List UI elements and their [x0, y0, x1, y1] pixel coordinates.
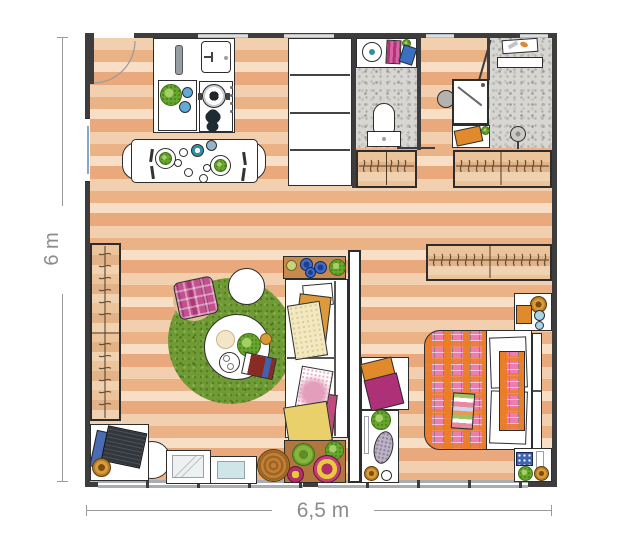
toilet-bowl — [373, 103, 395, 133]
dimension-tick — [57, 37, 68, 38]
green-pouf-icon — [292, 443, 315, 466]
rattan-pouf — [257, 449, 290, 482]
shower-head-arm-icon — [517, 141, 519, 149]
picture-icon — [217, 461, 245, 479]
window-top-3 — [426, 34, 454, 38]
hanger-row-icon — [454, 151, 551, 186]
blue-bowl-icon — [182, 87, 193, 98]
shower-handle-icon — [481, 83, 485, 87]
blue-box-icon — [516, 452, 533, 466]
console-handle-icon — [364, 416, 369, 454]
blue-bowl-icon — [179, 101, 191, 113]
plaid-runner — [499, 351, 525, 431]
cup-icon — [174, 159, 182, 167]
shower-head-icon — [510, 126, 526, 142]
hanger-row-icon — [427, 245, 551, 279]
dimension-tick — [57, 481, 68, 482]
hob-knob-icon — [230, 102, 233, 105]
sliding-door — [397, 147, 435, 149]
jug-icon — [206, 140, 217, 151]
wall-right — [552, 33, 557, 487]
hanger-row-icon — [357, 151, 416, 186]
cabinet-shelf-line — [290, 149, 350, 151]
desk-stool — [92, 458, 111, 477]
plant-icon — [518, 466, 533, 481]
dimension-tick — [551, 505, 552, 516]
soap-icon — [481, 126, 490, 135]
height-dimension-line — [62, 294, 63, 481]
blue-plate-icon — [305, 267, 316, 278]
cup-icon — [199, 174, 208, 183]
height-dimension-line — [62, 38, 63, 206]
gold-bowl-icon — [260, 333, 272, 345]
cup-icon — [203, 164, 211, 172]
window-top-4 — [520, 34, 548, 38]
round-stool — [228, 268, 265, 305]
plaid-pouf — [172, 275, 219, 320]
cup-icon — [184, 168, 193, 177]
entry-door-swing-icon — [90, 38, 136, 84]
blue-cup-icon — [534, 310, 545, 321]
faucet-icon — [211, 52, 213, 62]
blue-cup-icon — [535, 321, 544, 330]
floor-plan: 6 m 6,5 m — [0, 0, 620, 537]
teal-bowl-icon — [191, 144, 204, 157]
bowl-icon — [364, 466, 379, 481]
cabinet-shelf-line — [290, 74, 350, 76]
cookie-icon — [227, 363, 234, 370]
olive-dish-icon — [286, 260, 297, 271]
plate-icon — [216, 330, 235, 349]
width-dimension-line — [374, 510, 552, 511]
magenta-pouf-icon — [313, 455, 341, 483]
mirror-icon — [172, 455, 204, 478]
food-icon — [214, 159, 227, 172]
bathroom-wall-right — [417, 38, 421, 150]
cabinet-shelf-line — [290, 112, 350, 114]
coaster-icon — [534, 466, 549, 481]
sink-drain-icon — [224, 56, 228, 60]
width-label: 6,5 m — [280, 498, 366, 524]
window-top-2 — [284, 34, 334, 38]
plant-icon — [329, 259, 346, 276]
basin-drain-icon — [369, 49, 375, 55]
cutting-board — [175, 45, 183, 75]
orange-box-icon — [516, 305, 532, 324]
cup-icon — [179, 148, 188, 157]
hob-knob-icon — [230, 86, 233, 89]
hob-knob-icon — [230, 94, 233, 97]
headboard-split-line — [533, 390, 541, 392]
dimension-tick — [86, 505, 87, 516]
cookie-icon — [223, 355, 230, 362]
flush-button-icon — [382, 137, 386, 141]
hanger-column-icon — [91, 244, 120, 420]
striped-cushion — [451, 392, 475, 429]
height-label: 6 m — [39, 225, 65, 273]
lettuce-bowl-icon — [160, 84, 182, 106]
plant-icon — [371, 410, 391, 430]
width-dimension-line — [86, 510, 272, 511]
bowl-icon — [381, 470, 392, 481]
food-icon — [159, 152, 172, 165]
window-top-1 — [198, 34, 248, 38]
pot-icon — [202, 84, 226, 108]
window-left-glass — [87, 126, 89, 174]
partition-wall — [348, 250, 361, 483]
pot-handle-icon — [198, 93, 202, 100]
bed-plaid-blanket — [424, 330, 488, 450]
wall-shelf — [497, 57, 543, 68]
hob-knob-icon — [230, 110, 233, 113]
